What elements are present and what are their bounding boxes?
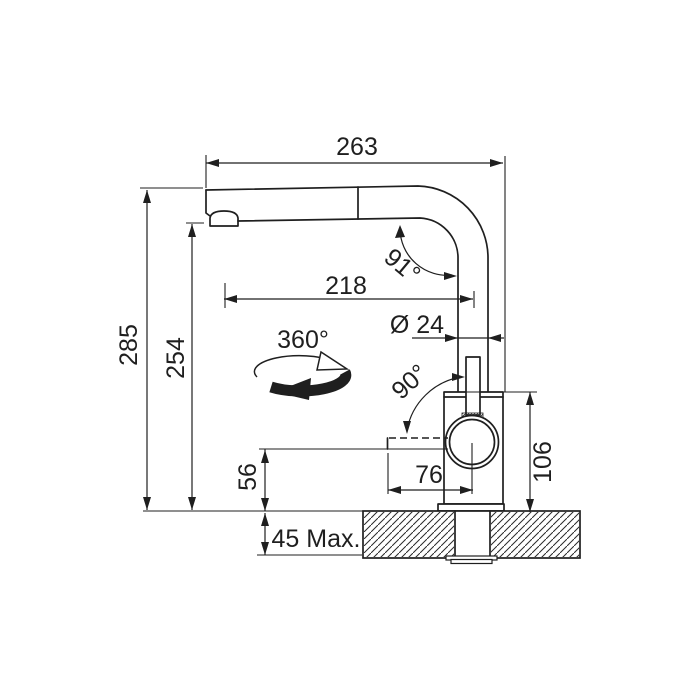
dim-label-diameter: Ø 24 xyxy=(390,311,444,339)
dim-label-reach: 218 xyxy=(325,272,367,300)
dim-label-handle-angle: 90° xyxy=(386,359,433,405)
swivel-rotation-icon xyxy=(254,352,347,400)
dim-label-deck-thickness: 45 Max. xyxy=(272,525,361,553)
dim-label-height-spout: 254 xyxy=(162,337,190,379)
spout-tip xyxy=(206,190,210,216)
mounting-nut-lower xyxy=(451,560,492,564)
dim-label-spout-angle: 91° xyxy=(379,243,426,289)
spout-inner-edge xyxy=(238,218,458,392)
dim-label-width-total: 263 xyxy=(336,133,378,161)
dim-label-handle-clearance: 56 xyxy=(234,463,262,491)
countertop-section xyxy=(363,511,580,564)
faucet-dimension-drawing: 263 218 285 254 91° Ø 24 360° 90° 106 76… xyxy=(0,0,700,700)
handle-lever-up xyxy=(466,357,480,415)
faucet-outline xyxy=(206,186,504,511)
technical-drawing-canvas: 263 218 285 254 91° Ø 24 360° 90° 106 76… xyxy=(0,0,700,700)
countertop-hatch-right xyxy=(491,512,579,557)
dim-label-swivel: 360° xyxy=(277,326,329,354)
aerator xyxy=(210,211,238,226)
dim-label-height-total: 285 xyxy=(115,324,143,366)
dim-label-handle-reach: 76 xyxy=(415,461,443,489)
base-flange xyxy=(438,504,504,511)
swivel-arrow-far xyxy=(317,352,347,370)
dim-label-body-height: 106 xyxy=(529,441,557,483)
countertop-hatch-left xyxy=(364,512,454,557)
